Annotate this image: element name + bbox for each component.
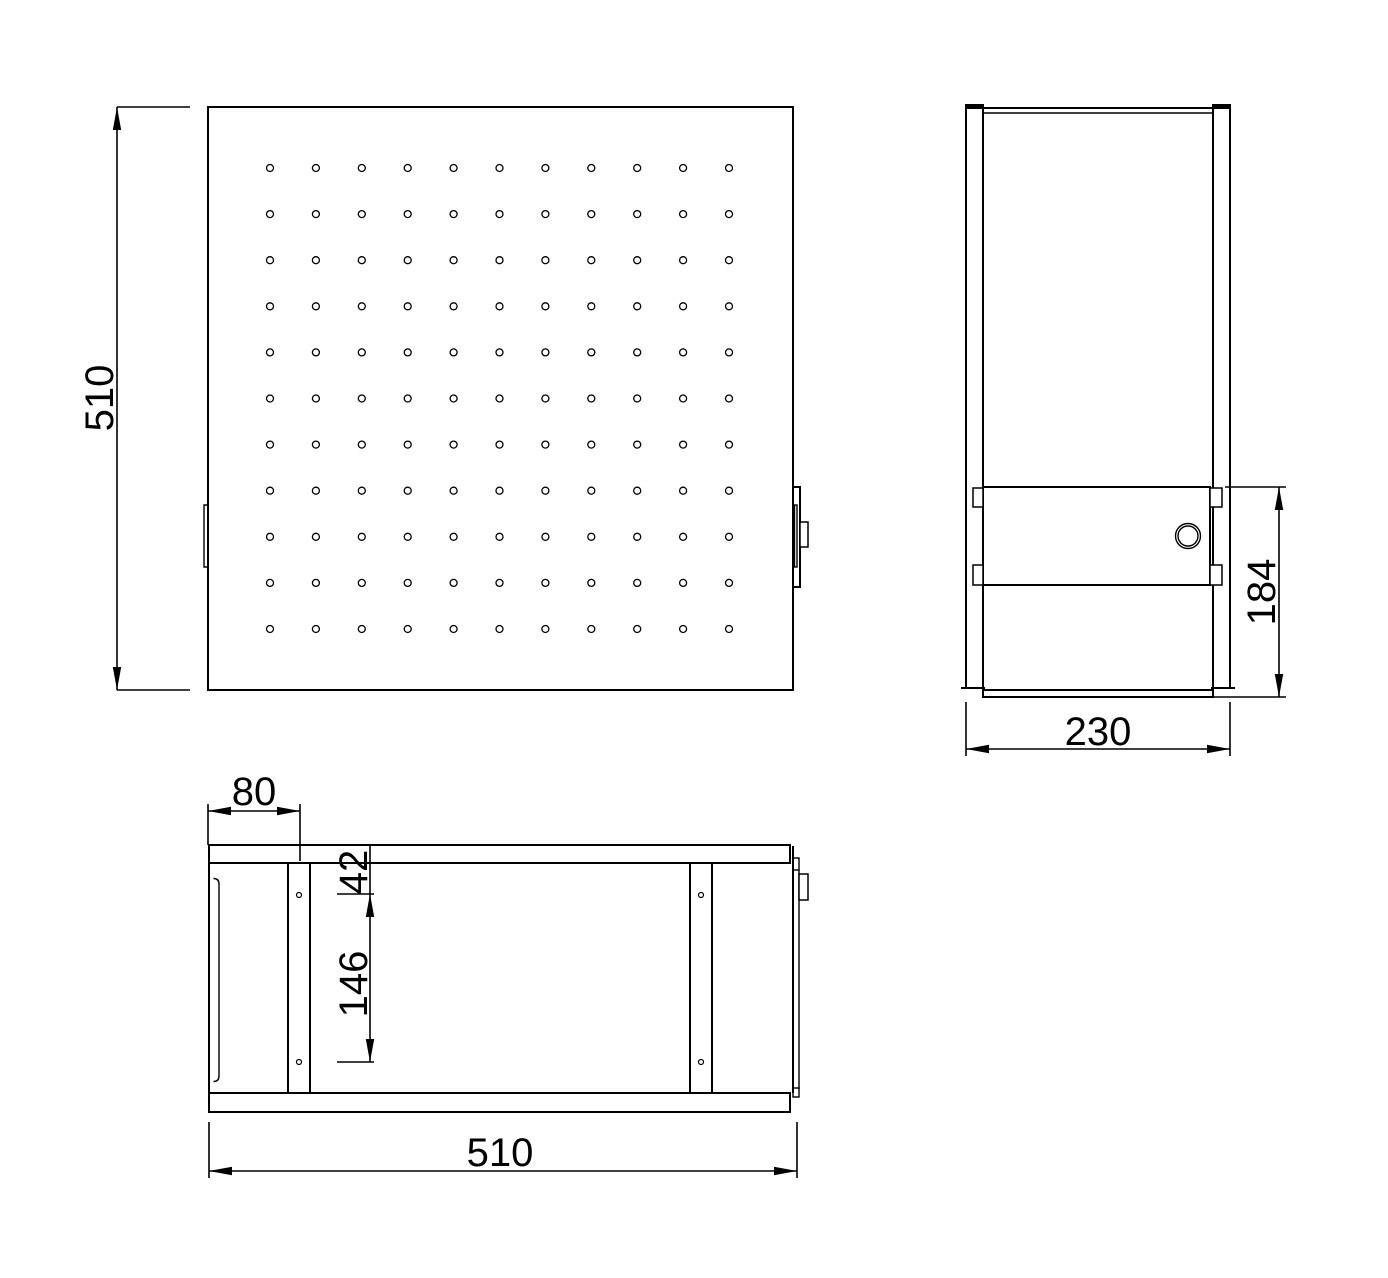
hole: [358, 165, 365, 172]
hole: [680, 626, 687, 633]
side-right-rail-cap: [1212, 104, 1231, 109]
hole: [358, 303, 365, 310]
hole: [634, 257, 641, 264]
front-latch-bump: [800, 522, 808, 547]
hole: [588, 257, 595, 264]
hole: [267, 626, 274, 633]
side-right-rail: [1213, 105, 1230, 688]
dimension-label-top-hole-spacing: 146: [332, 951, 376, 1018]
hole: [496, 165, 503, 172]
hole: [404, 211, 411, 218]
drawing-sheet: 510 184: [0, 0, 1388, 1278]
hole: [297, 1060, 302, 1065]
hole: [450, 395, 457, 402]
hole: [496, 303, 503, 310]
hole: [680, 303, 687, 310]
hole: [634, 487, 641, 494]
hole: [680, 211, 687, 218]
hole: [450, 165, 457, 172]
side-width-dimension: 230: [966, 702, 1230, 756]
hole: [312, 579, 319, 586]
hole: [542, 579, 549, 586]
hole: [312, 303, 319, 310]
hole: [542, 533, 549, 540]
hole: [404, 257, 411, 264]
hole: [588, 626, 595, 633]
arrow-left: [966, 745, 989, 753]
hole: [726, 349, 733, 356]
hole: [450, 303, 457, 310]
top-left-inset-edge: [214, 879, 220, 1082]
hole: [634, 303, 641, 310]
top-edge-offset-dimension: 80: [208, 770, 300, 861]
arrow-left: [208, 807, 231, 815]
hole: [542, 441, 549, 448]
hole: [312, 165, 319, 172]
hole: [680, 165, 687, 172]
side-band-tab-bottom-left: [973, 565, 983, 585]
hole: [358, 211, 365, 218]
hole: [680, 257, 687, 264]
hole: [634, 579, 641, 586]
hole: [312, 349, 319, 356]
arrow-down: [366, 1039, 374, 1062]
hole: [496, 441, 503, 448]
hole: [312, 626, 319, 633]
hole: [450, 487, 457, 494]
hole: [542, 257, 549, 264]
hole: [267, 165, 274, 172]
top-width-dimension: 510: [209, 1122, 797, 1178]
top-hole-dimensions: 42 146: [332, 846, 376, 1062]
hole: [450, 579, 457, 586]
hole: [496, 211, 503, 218]
arrow-up: [113, 107, 121, 130]
hole: [588, 211, 595, 218]
hole: [496, 395, 503, 402]
top-back-rail: [209, 1093, 790, 1112]
hole: [726, 211, 733, 218]
side-bottom-plate: [983, 690, 1213, 697]
hole: [542, 211, 549, 218]
hole: [542, 303, 549, 310]
hole: [358, 349, 365, 356]
hole: [312, 211, 319, 218]
hole: [358, 257, 365, 264]
hole: [680, 395, 687, 402]
hole: [450, 349, 457, 356]
hole: [267, 579, 274, 586]
hole: [588, 487, 595, 494]
hole: [404, 303, 411, 310]
hole: [588, 441, 595, 448]
hole: [588, 579, 595, 586]
top-front-rail: [209, 845, 790, 863]
hole: [588, 533, 595, 540]
top-view: 80 42 146 510: [208, 770, 808, 1178]
hole: [358, 579, 365, 586]
hole: [404, 395, 411, 402]
hole: [358, 395, 365, 402]
hole: [726, 533, 733, 540]
hole: [588, 349, 595, 356]
hole: [634, 349, 641, 356]
hole: [699, 1060, 704, 1065]
arrow-left: [209, 1167, 232, 1175]
hole: [267, 349, 274, 356]
hole: [726, 626, 733, 633]
hole: [450, 257, 457, 264]
hole: [312, 487, 319, 494]
front-height-dimension: 510: [78, 107, 190, 690]
arrow-down: [1275, 674, 1283, 697]
side-band-tab-bottom-right: [1210, 565, 1222, 585]
hole: [680, 441, 687, 448]
hole: [726, 441, 733, 448]
hole: [404, 533, 411, 540]
hole: [634, 395, 641, 402]
hole: [496, 626, 503, 633]
arrow-right: [1207, 745, 1230, 753]
front-view: 510: [78, 107, 808, 690]
hole: [542, 626, 549, 633]
hole: [699, 893, 704, 898]
side-left-rail-cap: [965, 104, 984, 109]
hole: [297, 893, 302, 898]
hole: [312, 533, 319, 540]
hole: [496, 579, 503, 586]
top-latch-bump: [799, 874, 808, 900]
arrow-up: [366, 894, 374, 917]
side-band-tab-top-right: [1210, 488, 1222, 507]
side-left-rail: [966, 105, 983, 688]
hole: [542, 349, 549, 356]
hole: [726, 165, 733, 172]
arrow-down: [113, 667, 121, 690]
technical-drawing: 510 184: [0, 0, 1388, 1278]
hole: [312, 257, 319, 264]
hole: [358, 487, 365, 494]
hole: [267, 257, 274, 264]
dimension-label-top-first-hole: 42: [332, 850, 376, 895]
hole: [680, 349, 687, 356]
hole: [404, 349, 411, 356]
hole: [267, 211, 274, 218]
hole: [267, 395, 274, 402]
hole: [496, 487, 503, 494]
hole: [358, 626, 365, 633]
hole: [542, 487, 549, 494]
dimension-label-top-width: 510: [467, 1131, 534, 1175]
hole: [450, 211, 457, 218]
hole: [726, 303, 733, 310]
hole: [358, 441, 365, 448]
hole: [542, 395, 549, 402]
hole: [726, 487, 733, 494]
hole: [726, 257, 733, 264]
hole: [634, 441, 641, 448]
hole: [267, 303, 274, 310]
hole: [404, 441, 411, 448]
hole: [542, 165, 549, 172]
hole: [588, 165, 595, 172]
hole: [496, 533, 503, 540]
hole: [634, 211, 641, 218]
hole: [404, 165, 411, 172]
hole: [404, 487, 411, 494]
side-door-height-dimension: 184: [1213, 487, 1286, 697]
hole: [634, 626, 641, 633]
hole: [680, 487, 687, 494]
hole: [267, 533, 274, 540]
hole: [588, 303, 595, 310]
dimension-label-side-door-height: 184: [1240, 559, 1284, 626]
hole: [450, 626, 457, 633]
hole: [358, 533, 365, 540]
hole: [404, 626, 411, 633]
hole: [588, 395, 595, 402]
dimension-label-top-edge-offset: 80: [232, 770, 277, 814]
front-panel-holes: [267, 165, 733, 633]
side-band-tab-top-left: [973, 488, 983, 507]
hole: [634, 533, 641, 540]
hole: [634, 165, 641, 172]
hole: [726, 579, 733, 586]
hole: [312, 441, 319, 448]
arrow-right: [277, 807, 300, 815]
hole: [680, 579, 687, 586]
dimension-label-front-height: 510: [78, 365, 122, 432]
side-view: 184 230: [961, 104, 1286, 756]
hole: [450, 441, 457, 448]
hole: [496, 257, 503, 264]
hole: [312, 395, 319, 402]
arrow-up: [1275, 487, 1283, 510]
hole: [680, 533, 687, 540]
dimension-label-side-width: 230: [1065, 710, 1132, 754]
hole: [726, 395, 733, 402]
hole: [267, 441, 274, 448]
hole: [404, 579, 411, 586]
hole: [450, 533, 457, 540]
hole: [267, 487, 274, 494]
arrow-right: [774, 1167, 797, 1175]
hole: [496, 349, 503, 356]
